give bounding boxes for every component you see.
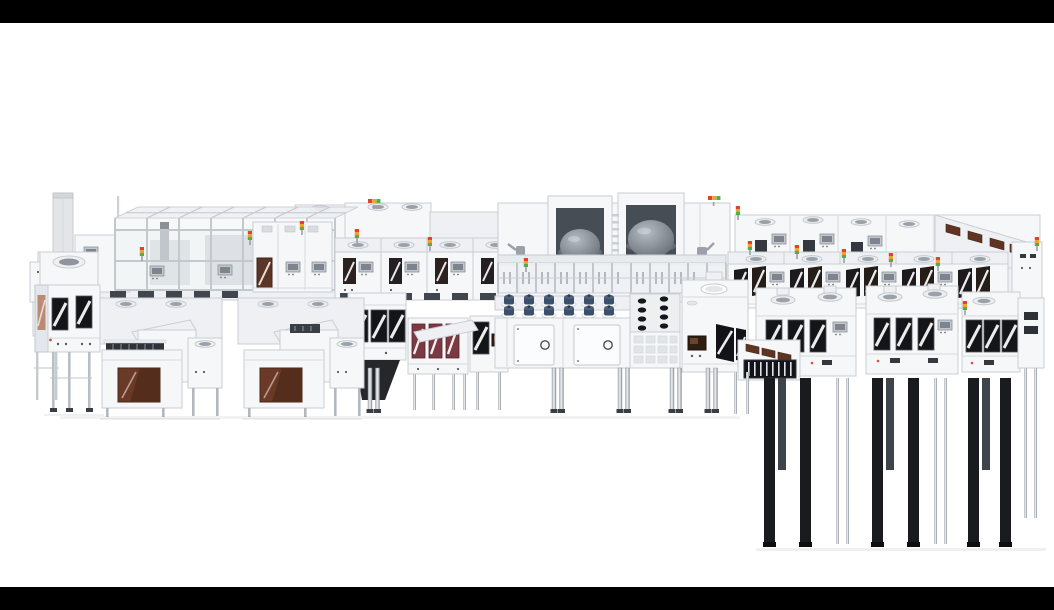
- track-module: [381, 238, 427, 300]
- brown-window: [260, 368, 302, 402]
- black-grille: [744, 360, 796, 378]
- holes-deck: [630, 294, 680, 368]
- euv-dome-right: [628, 220, 674, 258]
- filter-unit: [253, 222, 332, 292]
- track-module: [335, 238, 381, 300]
- left-roof-vent-box: [40, 252, 98, 285]
- letterbox-top: [0, 0, 1054, 23]
- valve-console: [495, 294, 630, 368]
- front-module: [962, 292, 1020, 372]
- porthole-door: [574, 325, 620, 365]
- letterbox-bottom: [0, 587, 1054, 610]
- track-module: [427, 238, 473, 300]
- porthole-door: [514, 325, 554, 365]
- process-chambers: [498, 193, 730, 265]
- floor-shadow: [60, 416, 740, 419]
- front-module: [866, 284, 958, 374]
- right-track-row-front: [738, 284, 1044, 380]
- brown-window: [118, 368, 160, 402]
- machine-render: [0, 0, 1054, 610]
- screenshot-canvas: [0, 0, 1054, 610]
- mid-track-modules: [335, 238, 519, 300]
